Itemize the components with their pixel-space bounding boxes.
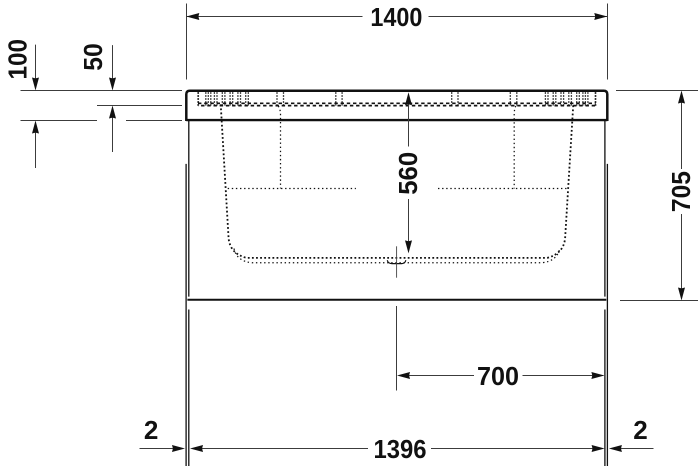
svg-text:1396: 1396	[374, 436, 427, 464]
svg-text:700: 700	[477, 363, 519, 391]
svg-text:1400: 1400	[370, 4, 422, 32]
svg-text:50: 50	[80, 43, 108, 71]
svg-text:2: 2	[144, 417, 159, 445]
svg-text:2: 2	[633, 417, 648, 445]
svg-text:560: 560	[395, 152, 423, 195]
svg-text:100: 100	[4, 39, 32, 79]
svg-text:705: 705	[668, 171, 696, 212]
